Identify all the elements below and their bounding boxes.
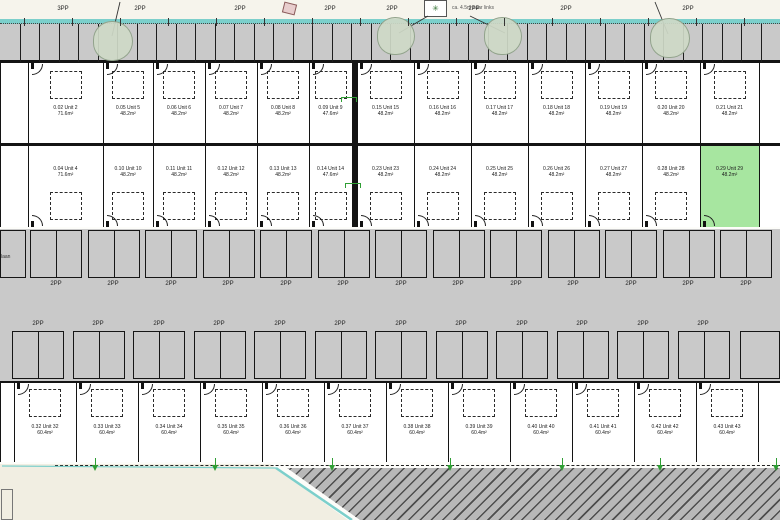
green-arrow-icon [773, 465, 779, 471]
mezzanine-dashed-outline [649, 389, 681, 417]
unit-label: 0.08 Unit 848.2m² [257, 105, 309, 117]
mezzanine-dashed-outline [587, 389, 619, 417]
parking-count-label: 2PP [560, 6, 571, 12]
parking-stall-line [644, 24, 645, 62]
mezzanine-dashed-outline [541, 192, 573, 220]
boundary-tick [552, 18, 553, 26]
parking-stall-line [39, 24, 40, 62]
parking-stall-line [234, 24, 235, 62]
boundary-tick [120, 18, 121, 26]
parking-stall-line [20, 24, 21, 62]
parking-count-label: 2PP [134, 6, 145, 12]
parking-stall-line [156, 24, 157, 62]
parking-count-label: 2PP [50, 281, 61, 287]
boundary-tick [72, 18, 73, 26]
door-jamb [79, 383, 82, 389]
mezzanine-dashed-outline [598, 71, 630, 99]
unit-label: 0.02 Unit 271.6m² [28, 105, 103, 117]
parking-stall-line [351, 24, 352, 62]
unit-label: 0.28 Unit 2848.2m² [642, 166, 700, 178]
unit-label: 0.40 Unit 4060.4m² [510, 424, 572, 436]
unit-label: 0.17 Unit 1748.2m² [471, 105, 528, 117]
ground-marker [1, 489, 13, 520]
parking-count-label: 2PP [153, 321, 164, 327]
mezzanine-dashed-outline [655, 71, 687, 99]
unit-label: 0.23 Unit 2348.2m² [357, 166, 414, 178]
unit-label-line: 48.2m² [414, 111, 471, 117]
parking-stall-line [585, 24, 586, 62]
parking-stall-line [137, 24, 138, 62]
parking-bay-divider [344, 230, 345, 278]
unit-cell-partial[interactable] [759, 63, 780, 144]
green-arrow-stem [215, 458, 216, 465]
door-jamb [588, 63, 591, 69]
parking-count-label: 2PP [395, 281, 406, 287]
boundary-tick [264, 18, 265, 26]
mezzanine-dashed-outline [484, 192, 516, 220]
door-jamb [575, 383, 578, 389]
unit-label: 0.11 Unit 1148.2m² [153, 166, 205, 178]
parking-count-label: 2PP [280, 281, 291, 287]
mezzanine-dashed-outline [163, 192, 195, 220]
boundary-tick [168, 18, 169, 26]
unit-label-line: 48.2m² [103, 172, 153, 178]
green-arrow-icon [657, 465, 663, 471]
boundary-tick [600, 18, 601, 26]
mezzanine-dashed-outline [50, 192, 82, 220]
door-jamb [417, 221, 420, 227]
door-jamb [17, 383, 20, 389]
parking-bay-divider [159, 331, 160, 379]
door-jamb [260, 221, 263, 227]
unit-label-line: 71.6m² [28, 111, 103, 117]
mezzanine-dashed-outline [655, 192, 687, 220]
door-jamb [312, 221, 315, 227]
boundary-tick [648, 18, 649, 26]
green-arrow-stem [562, 458, 563, 465]
mezzanine-dashed-outline [427, 192, 459, 220]
unit-label: 0.13 Unit 1348.2m² [257, 166, 309, 178]
unit-label: 0.32 Unit 3260.4m² [14, 424, 76, 436]
tree-icon [93, 21, 133, 61]
door-jamb [645, 221, 648, 227]
unit-cell-partial[interactable] [758, 383, 780, 462]
door-jamb [703, 63, 706, 69]
building-a-section-wall [352, 62, 357, 227]
zone-dashed-boundary [55, 465, 780, 466]
boundary-tick [456, 18, 457, 26]
parking-bay-divider [574, 230, 575, 278]
parking-bay-divider [401, 331, 402, 379]
green-arrow-icon [447, 465, 453, 471]
unit-label-line: 60.4m² [510, 430, 572, 436]
boundary-tick [504, 18, 505, 26]
unit-label-line: 48.2m² [257, 111, 309, 117]
green-arrow-icon [92, 465, 98, 471]
parking-count-label: 2PP [576, 321, 587, 327]
parking-bay-divider [522, 331, 523, 379]
tree-icon [377, 17, 415, 55]
unit-cell-partial[interactable] [0, 383, 14, 462]
mezzanine-dashed-outline [277, 389, 309, 417]
parking-stall-line [215, 24, 216, 62]
unit-cell-partial[interactable] [0, 146, 28, 227]
door-jamb [106, 63, 109, 69]
unit-label: 0.14 Unit 1447.6m² [309, 166, 352, 178]
tree-icon [484, 17, 522, 55]
mezzanine-dashed-outline [401, 389, 433, 417]
mezzanine-dashed-outline [541, 71, 573, 99]
door-jamb [474, 63, 477, 69]
parking-stall-line [741, 24, 742, 62]
parking-bay-divider [459, 230, 460, 278]
door-jamb [208, 221, 211, 227]
green-arrow-stem [95, 458, 96, 465]
parking-stall-line [254, 24, 255, 62]
unit-label-line: 60.4m² [138, 430, 200, 436]
unit-label-line: 48.2m² [205, 172, 257, 178]
parking-stall-line [59, 24, 60, 62]
parking-count-label: 2PP [682, 281, 693, 287]
door-jamb [327, 383, 330, 389]
mezzanine-dashed-outline [315, 71, 347, 99]
green-arrow-icon [212, 465, 218, 471]
parking-count-label: 2PP [386, 6, 397, 12]
parking-stall-line [546, 24, 547, 62]
unit-label-line: 47.6m² [309, 111, 352, 117]
unit-label: 0.10 Unit 1048.2m² [103, 166, 153, 178]
parking-count-label: 2PP [740, 281, 751, 287]
unit-label: 0.39 Unit 3960.4m² [448, 424, 510, 436]
unit-label-line: 48.2m² [205, 111, 257, 117]
parking-count-label: 3PP [57, 6, 68, 12]
parking-bay-divider [746, 230, 747, 278]
parking-bay-divider [56, 230, 57, 278]
unit-label: 0.21 Unit 2148.2m² [700, 105, 759, 117]
unit-label: 0.41 Unit 4160.4m² [572, 424, 634, 436]
door-jamb [31, 221, 34, 227]
door-jamb [260, 63, 263, 69]
door-jamb [637, 383, 640, 389]
unit-cell-highlighted[interactable] [700, 146, 759, 227]
door-jamb [312, 63, 315, 69]
mezzanine-dashed-outline [29, 389, 61, 417]
door-jamb [360, 63, 363, 69]
parking-bay-divider [341, 331, 342, 379]
parking-bay-divider [462, 331, 463, 379]
parking-stall-line [293, 24, 294, 62]
unit-label: 0.29 Unit 2948.2m² [700, 166, 759, 178]
unit-label-line: 48.2m² [528, 172, 585, 178]
unit-label: 0.37 Unit 3760.4m² [324, 424, 386, 436]
unit-label-line: 48.2m² [642, 111, 700, 117]
parking-count-label: 2PP [567, 281, 578, 287]
parking-count-label: 2PP [637, 321, 648, 327]
parking-bay-divider [643, 331, 644, 379]
parking-count-label: 2PP [455, 321, 466, 327]
unit-label-line: 48.2m² [471, 172, 528, 178]
parking-count-label: 2PP [222, 281, 233, 287]
unit-label: 0.25 Unit 2548.2m² [471, 166, 528, 178]
mezzanine-dashed-outline [370, 192, 402, 220]
parking-count-label: 2PP [107, 281, 118, 287]
unit-label-line: 48.2m² [471, 111, 528, 117]
door-jamb [451, 383, 454, 389]
unit-label: 0.19 Unit 1948.2m² [585, 105, 642, 117]
door-jamb [360, 221, 363, 227]
parking-stall-line [332, 24, 333, 62]
door-jamb [699, 383, 702, 389]
parking-stall-line [468, 24, 469, 62]
green-arrow-stem [450, 458, 451, 465]
unit-label: 0.43 Unit 4360.4m² [696, 424, 758, 436]
green-arrow-icon [559, 465, 565, 471]
parking-bay-divider [704, 331, 705, 379]
parking-stall-line [195, 24, 196, 62]
parking-bay-divider [229, 230, 230, 278]
mezzanine-dashed-outline [427, 71, 459, 99]
unit-label: 0.42 Unit 4260.4m² [634, 424, 696, 436]
parking-stall-line [527, 24, 528, 62]
unit-label: 0.34 Unit 3460.4m² [138, 424, 200, 436]
dimension-marker [341, 97, 357, 102]
door-jamb [156, 221, 159, 227]
boundary-tick [360, 18, 361, 26]
boundary-tick [24, 18, 25, 26]
unit-label-line: 48.2m² [700, 111, 759, 117]
boundary-tick [408, 18, 409, 26]
parking-bay-divider [286, 230, 287, 278]
parking-bay-divider [401, 230, 402, 278]
unit-label: 0.33 Unit 3360.4m² [76, 424, 138, 436]
parking-bay-divider [38, 331, 39, 379]
parking-count-label: 2PP [468, 6, 479, 12]
unit-label: 0.09 Unit 947.6m² [309, 105, 352, 117]
parking-bay-divider [99, 331, 100, 379]
unit-label: 0.12 Unit 1248.2m² [205, 166, 257, 178]
parking-count-label: 2PP [337, 281, 348, 287]
mezzanine-dashed-outline [215, 71, 247, 99]
unit-label-line: 60.4m² [324, 430, 386, 436]
unit-label-line: 60.4m² [696, 430, 758, 436]
unit-cell-partial[interactable] [759, 146, 780, 227]
green-arrow-stem [332, 458, 333, 465]
unit-label: 0.07 Unit 748.2m² [205, 105, 257, 117]
unit-label: 0.26 Unit 2648.2m² [528, 166, 585, 178]
parking-stall-line [722, 24, 723, 62]
mezzanine-dashed-outline [215, 389, 247, 417]
mezzanine-dashed-outline [525, 389, 557, 417]
unit-label: 0.38 Unit 3860.4m² [386, 424, 448, 436]
parking-count-label: 2PP [334, 321, 345, 327]
door-jamb [531, 221, 534, 227]
mezzanine-dashed-outline [50, 71, 82, 99]
parking-count-label: 2PP [625, 281, 636, 287]
mezzanine-dashed-outline [267, 192, 299, 220]
unit-label-line: 60.4m² [200, 430, 262, 436]
parking-stall-line [78, 24, 79, 62]
door-jamb [389, 383, 392, 389]
unit-label-line: 48.2m² [585, 172, 642, 178]
door-jamb [106, 221, 109, 227]
parking-stall-line [449, 24, 450, 62]
unit-label-line: 60.4m² [262, 430, 324, 436]
parking-stall-line [566, 24, 567, 62]
boundary-tick [312, 18, 313, 26]
parking-bay [0, 230, 26, 278]
unit-label-line: 48.2m² [153, 111, 205, 117]
unit-label: 0.06 Unit 648.2m² [153, 105, 205, 117]
unit-label-line: 48.2m² [642, 172, 700, 178]
parking-bay-divider [516, 230, 517, 278]
parking-bay [740, 331, 780, 379]
parking-count-label: 2PP [324, 6, 335, 12]
unit-label: 0.05 Unit 548.2m² [103, 105, 153, 117]
unit-label: 0.16 Unit 1648.2m² [414, 105, 471, 117]
parking-count-label: 2PP [697, 321, 708, 327]
parking-count-label: 2PP [32, 321, 43, 327]
unit-label-line: 60.4m² [14, 430, 76, 436]
parking-count-label: 2PP [452, 281, 463, 287]
unit-label-line: 48.2m² [357, 111, 414, 117]
unit-label-line: 71.6m² [28, 172, 103, 178]
unit-label-line: 48.2m² [103, 111, 153, 117]
parking-count-label: 2PP [395, 321, 406, 327]
parking-stall-line [273, 24, 274, 62]
unit-cell-partial[interactable] [0, 63, 28, 144]
parking-bay-divider [171, 230, 172, 278]
parking-stall-line [176, 24, 177, 62]
unit-label: 0.24 Unit 2448.2m² [414, 166, 471, 178]
door-jamb [265, 383, 268, 389]
unit-label: 0.35 Unit 3560.4m² [200, 424, 262, 436]
parking-stall-line [761, 24, 762, 62]
mezzanine-dashed-outline [91, 389, 123, 417]
mezzanine-dashed-outline [370, 71, 402, 99]
mezzanine-dashed-outline [339, 389, 371, 417]
unit-label-line: 60.4m² [448, 430, 510, 436]
door-jamb [645, 63, 648, 69]
mezzanine-dashed-outline [484, 71, 516, 99]
mezzanine-dashed-outline [215, 192, 247, 220]
mezzanine-dashed-outline [463, 389, 495, 417]
site-plan: ✳ ca. 4.5m naar links Gebouw A Gebouw B … [0, 0, 780, 520]
dimension-marker [345, 183, 361, 188]
door-jamb [203, 383, 206, 389]
boundary-tick [744, 18, 745, 26]
mezzanine-dashed-outline [163, 71, 195, 99]
unit-label-line: 48.2m² [528, 111, 585, 117]
unit-label-line: 48.2m² [700, 172, 759, 178]
boundary-tick [696, 18, 697, 26]
parking-count-label: 2PP [274, 321, 285, 327]
unit-label: 0.20 Unit 2048.2m² [642, 105, 700, 117]
parking-stall-line [429, 24, 430, 62]
green-arrow-stem [776, 458, 777, 465]
mezzanine-dashed-outline [112, 71, 144, 99]
parking-bay-divider [114, 230, 115, 278]
parking-count-label: 2PP [682, 6, 693, 12]
parking-bay-divider [583, 331, 584, 379]
unit-label-line: 60.4m² [386, 430, 448, 436]
mezzanine-dashed-outline [714, 71, 746, 99]
door-jamb [156, 63, 159, 69]
door-jamb [531, 63, 534, 69]
parking-count-label: 2PP [234, 6, 245, 12]
unit-label-line: 48.2m² [257, 172, 309, 178]
mezzanine-dashed-outline [315, 192, 347, 220]
mezzanine-dashed-outline [711, 389, 743, 417]
unit-label: 0.27 Unit 2748.2m² [585, 166, 642, 178]
tree-annotation-box: ✳ [424, 0, 447, 17]
parking-count-label: 2PP [213, 321, 224, 327]
parking-stall-line [312, 24, 313, 62]
parking-count-label: 2PP [510, 281, 521, 287]
door-jamb [703, 221, 706, 227]
parking-bay-divider [689, 230, 690, 278]
unit-label-line: 60.4m² [76, 430, 138, 436]
parking-count-label: 2PP [165, 281, 176, 287]
parking-stall-line [371, 24, 372, 62]
unit-label-line: 48.2m² [585, 111, 642, 117]
door-jamb [474, 221, 477, 227]
unit-label-line: 47.6m² [309, 172, 352, 178]
tree-icon [650, 18, 690, 58]
mezzanine-dashed-outline [153, 389, 185, 417]
parking-bay-divider [220, 331, 221, 379]
door-jamb [588, 221, 591, 227]
parking-bay-divider [280, 331, 281, 379]
green-arrow-stem [660, 458, 661, 465]
unit-label-line: 48.2m² [153, 172, 205, 178]
tree-symbol-icon: ✳ [432, 4, 439, 13]
parking-stall-line [624, 24, 625, 62]
door-jamb [208, 63, 211, 69]
mezzanine-dashed-outline [112, 192, 144, 220]
unit-label-line: 60.4m² [572, 430, 634, 436]
parking-count-label: 2PP [92, 321, 103, 327]
unit-label: 0.36 Unit 3660.4m² [262, 424, 324, 436]
unit-label: 0.04 Unit 471.6m² [28, 166, 103, 178]
unit-label: 0.15 Unit 1548.2m² [357, 105, 414, 117]
parking-stall-line [702, 24, 703, 62]
green-arrow-icon [329, 465, 335, 471]
unit-label-line: 60.4m² [634, 430, 696, 436]
mezzanine-dashed-outline [267, 71, 299, 99]
unit-label: 0.18 Unit 1848.2m² [528, 105, 585, 117]
door-jamb [417, 63, 420, 69]
mezzanine-dashed-outline [598, 192, 630, 220]
door-jamb [31, 63, 34, 69]
door-jamb [513, 383, 516, 389]
parking-bay-divider [631, 230, 632, 278]
boundary-tick [216, 18, 217, 26]
parking-stall-line [605, 24, 606, 62]
parking-count-label: 2PP [516, 321, 527, 327]
door-jamb [141, 383, 144, 389]
unit-label-line: 48.2m² [414, 172, 471, 178]
unit-label-line: 48.2m² [357, 172, 414, 178]
